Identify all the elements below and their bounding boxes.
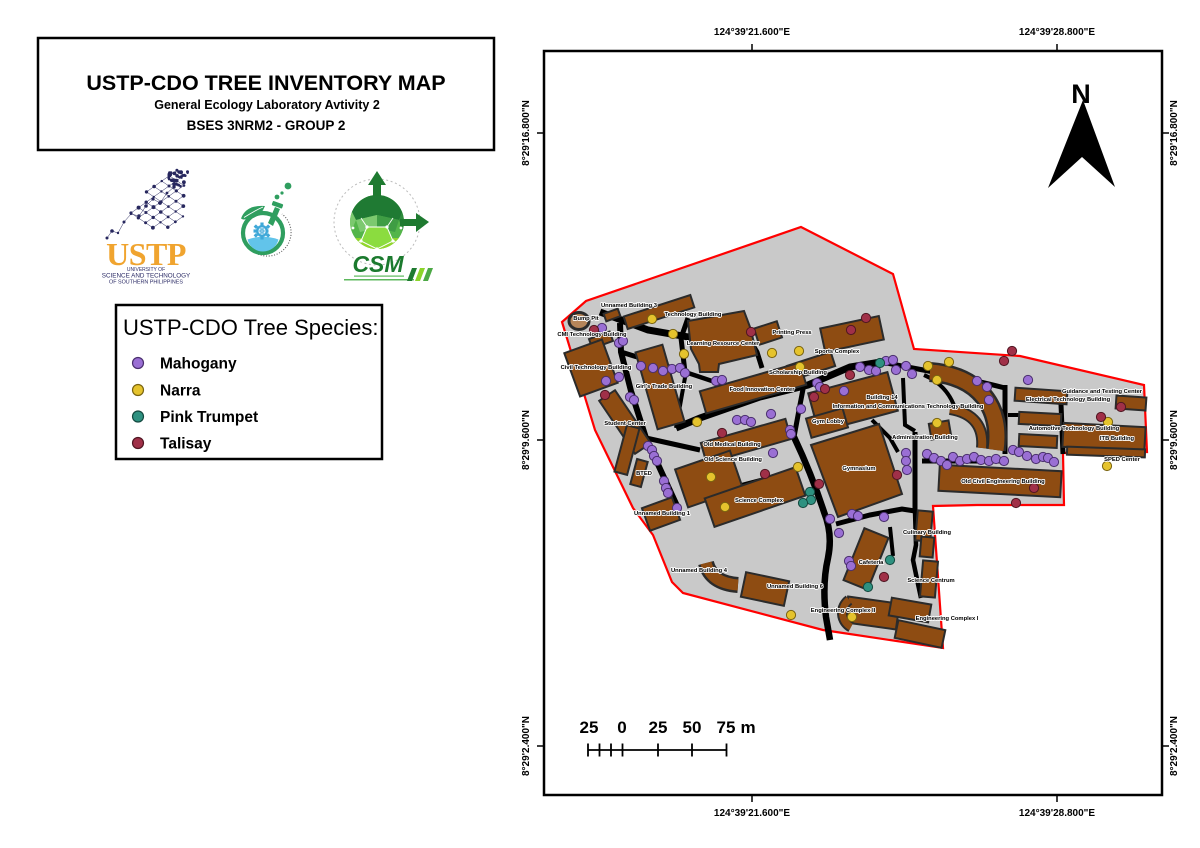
svg-text:Old Medical Building: Old Medical Building: [703, 442, 761, 448]
svg-text:Learning Resource Center: Learning Resource Center: [687, 341, 760, 347]
svg-text:8°29'16.800"N: 8°29'16.800"N: [521, 100, 532, 166]
svg-text:8°29'9.600"N: 8°29'9.600"N: [1169, 410, 1180, 470]
svg-text:Narra: Narra: [160, 383, 201, 400]
svg-text:8°29'2.400"N: 8°29'2.400"N: [1169, 716, 1180, 776]
svg-text:Guidance and Testing Center: Guidance and Testing Center: [1062, 389, 1143, 395]
svg-text:Information and Communications: Information and Communications Technolog…: [833, 404, 984, 410]
svg-text:General Ecology Laboratory Avt: General Ecology Laboratory Avtivity 2: [154, 98, 380, 112]
svg-text:Building 14: Building 14: [866, 395, 898, 401]
svg-text:8°29'16.800"N: 8°29'16.800"N: [1169, 100, 1180, 166]
svg-text:Unnamed Building 4: Unnamed Building 4: [671, 568, 728, 574]
svg-text:124°39'21.600"E: 124°39'21.600"E: [714, 808, 791, 819]
svg-text:25: 25: [580, 718, 599, 737]
svg-text:Sports Complex: Sports Complex: [815, 349, 860, 355]
svg-text:OF SOUTHERN PHILIPPINES: OF SOUTHERN PHILIPPINES: [109, 280, 183, 286]
svg-text:Civil Technology Building: Civil Technology Building: [561, 365, 632, 371]
svg-text:CSM: CSM: [352, 251, 404, 277]
svg-text:Mahogany: Mahogany: [160, 356, 237, 373]
svg-text:Electrical Technology Building: Electrical Technology Building: [1026, 397, 1111, 403]
svg-text:Science Complex: Science Complex: [735, 498, 784, 504]
svg-text:Gymnasium: Gymnasium: [842, 466, 875, 472]
svg-text:25: 25: [649, 718, 668, 737]
svg-text:m: m: [740, 718, 755, 737]
svg-text:Student Center: Student Center: [604, 421, 646, 427]
svg-text:Scholarship Building: Scholarship Building: [769, 370, 827, 376]
svg-text:Technology Building: Technology Building: [665, 312, 722, 318]
svg-text:Unnamed Building 6: Unnamed Building 6: [767, 584, 824, 590]
svg-text:USTP-CDO TREE INVENTORY MAP: USTP-CDO TREE INVENTORY MAP: [86, 71, 445, 95]
svg-text:Unnamed Building 3: Unnamed Building 3: [601, 303, 658, 309]
svg-text:Engineering Complex II: Engineering Complex II: [811, 608, 876, 614]
svg-text:Old Science Building: Old Science Building: [704, 457, 762, 463]
svg-text:Culinary Building: Culinary Building: [903, 530, 951, 536]
svg-text:USTP-CDO Tree Species:: USTP-CDO Tree Species:: [123, 315, 379, 340]
svg-text:Pink Trumpet: Pink Trumpet: [160, 409, 258, 426]
svg-text:SPED Center: SPED Center: [1104, 457, 1141, 463]
svg-text:8°29'9.600"N: 8°29'9.600"N: [521, 410, 532, 470]
svg-text:124°39'28.800"E: 124°39'28.800"E: [1019, 27, 1096, 38]
svg-text:Engineering Complex I: Engineering Complex I: [916, 616, 979, 622]
svg-text:Gym Lobby: Gym Lobby: [812, 419, 845, 425]
svg-text:Bump Pit: Bump Pit: [573, 316, 599, 322]
svg-text:Administration Building: Administration Building: [892, 435, 958, 441]
svg-text:BSES 3NRM2 - GROUP 2: BSES 3NRM2 - GROUP 2: [187, 118, 346, 133]
svg-text:124°39'28.800"E: 124°39'28.800"E: [1019, 808, 1096, 819]
svg-text:Food Innovation Center: Food Innovation Center: [729, 387, 795, 393]
svg-text:Unnamed Building 1: Unnamed Building 1: [634, 511, 691, 517]
svg-text:Cafeteria: Cafeteria: [859, 560, 885, 566]
svg-text:Science Centrum: Science Centrum: [907, 578, 954, 584]
svg-text:Printing Press: Printing Press: [772, 330, 811, 336]
svg-text:Automotive Technology Building: Automotive Technology Building: [1029, 426, 1120, 432]
svg-text:BTED: BTED: [636, 471, 652, 477]
svg-text:Girl's Trade Building: Girl's Trade Building: [636, 384, 693, 390]
svg-text:SCIENCE AND TECHNOLOGY: SCIENCE AND TECHNOLOGY: [102, 273, 191, 280]
svg-text:8°29'2.400"N: 8°29'2.400"N: [521, 716, 532, 776]
svg-text:Talisay: Talisay: [160, 436, 212, 453]
svg-text:75: 75: [717, 718, 736, 737]
svg-text:N: N: [1071, 79, 1091, 109]
svg-text:CMI Technology Building: CMI Technology Building: [557, 332, 627, 338]
svg-text:0: 0: [617, 718, 626, 737]
svg-text:ITB Building: ITB Building: [1100, 436, 1135, 442]
svg-text:50: 50: [683, 718, 702, 737]
svg-text:124°39'21.600"E: 124°39'21.600"E: [714, 27, 791, 38]
svg-text:Old Civil Engineering Building: Old Civil Engineering Building: [961, 479, 1045, 485]
